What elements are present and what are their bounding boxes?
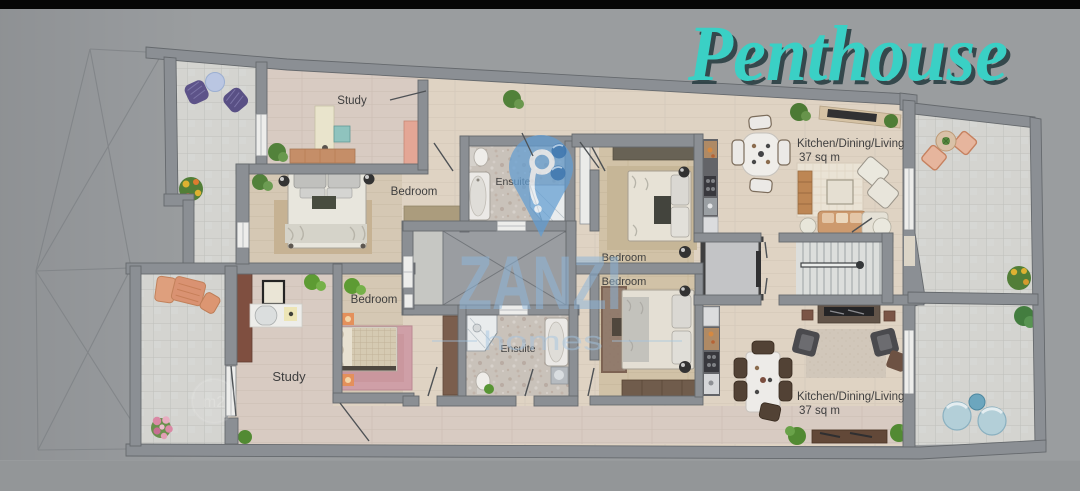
svg-text:Penthouse: Penthouse [687,11,1008,98]
